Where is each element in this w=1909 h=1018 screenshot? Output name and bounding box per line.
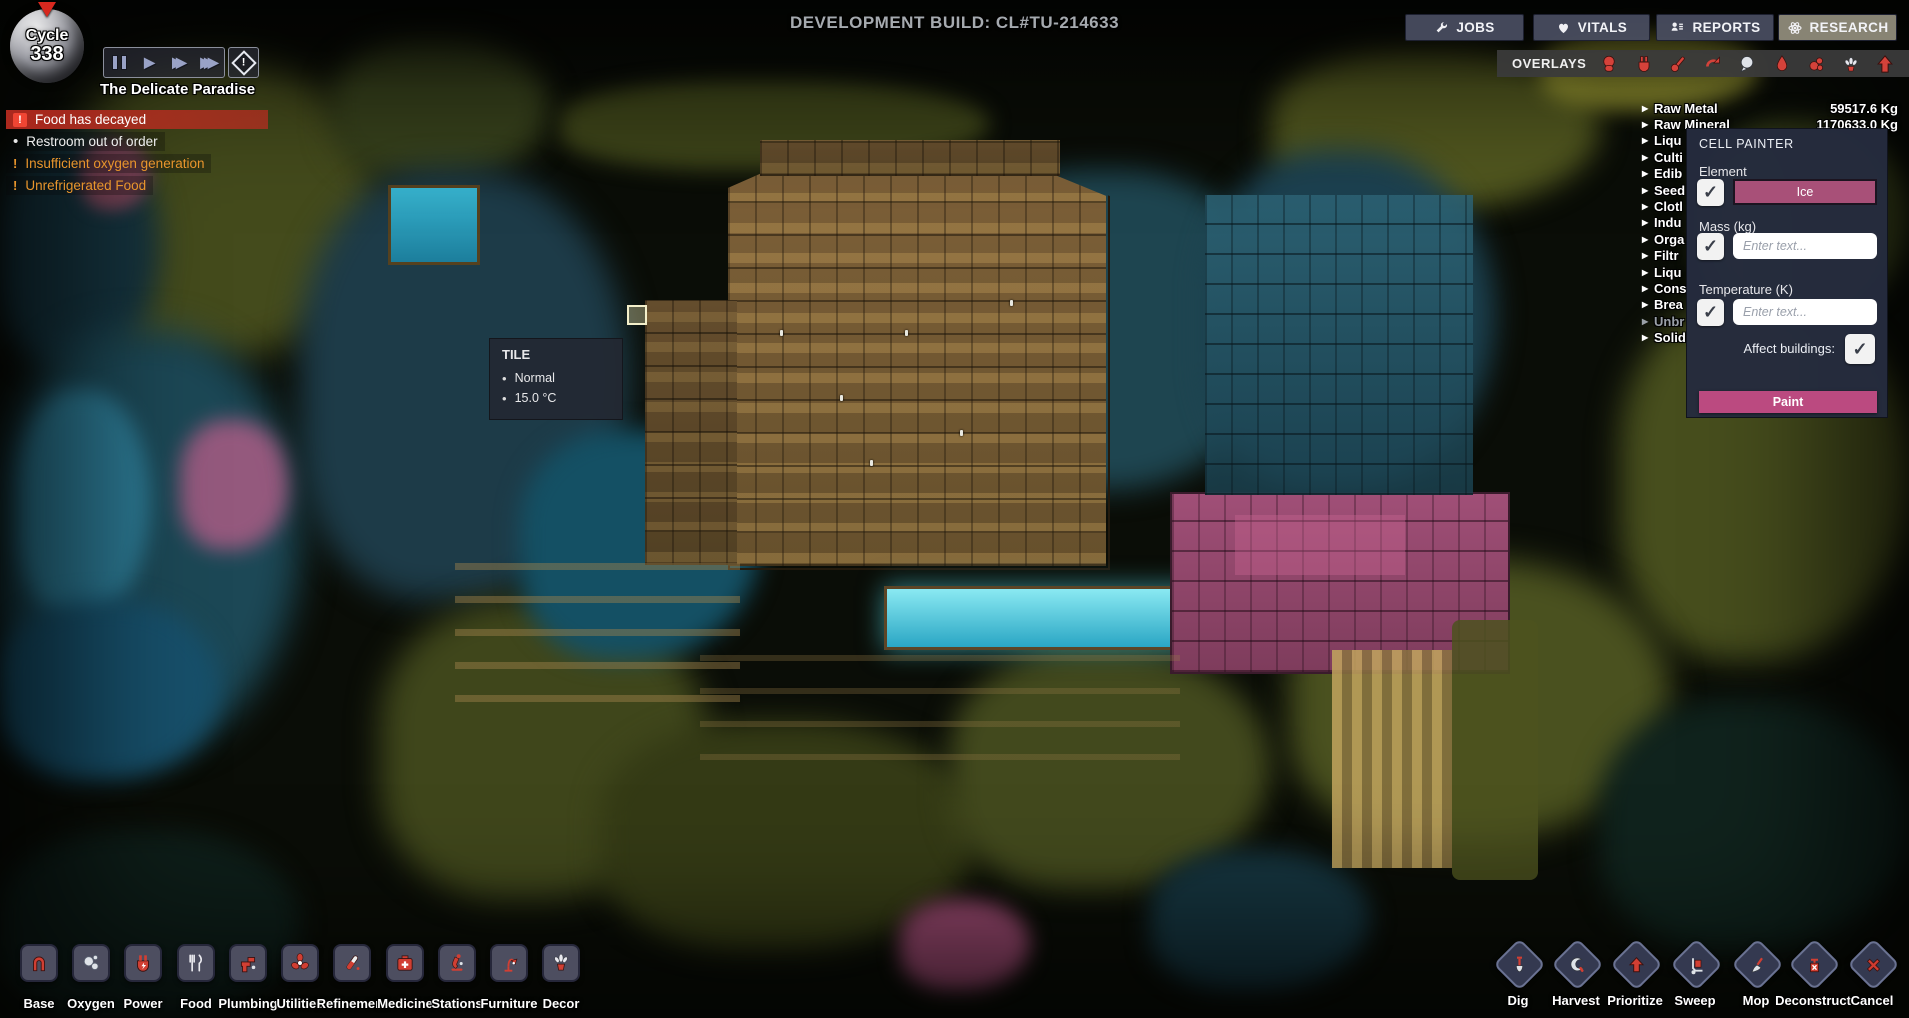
bullet-icon: •: [13, 134, 18, 149]
east-structure: [1205, 195, 1473, 495]
resource-label: Liqu: [1654, 265, 1681, 280]
conveyor-overlay-icon[interactable]: [1702, 53, 1724, 75]
notifications-button[interactable]: !: [228, 47, 259, 78]
dev-build-label: DEVELOPMENT BUILD: CL#TU-214633: [790, 13, 1119, 33]
expand-arrow-icon: ▶: [1642, 300, 1654, 309]
build-category-plumbing[interactable]: [229, 944, 267, 982]
industrial-zone-highlight: [1235, 515, 1405, 575]
cycle-badge[interactable]: Cycle 338: [10, 9, 84, 83]
resource-label: Orga: [1654, 232, 1684, 247]
exclamation-icon: !: [13, 113, 27, 127]
tooltip-item: Normal: [515, 371, 555, 385]
sweep-icon: [1687, 955, 1707, 975]
mass-label: Mass (kg): [1699, 219, 1756, 234]
resource-label: Raw Metal: [1654, 101, 1718, 116]
olive-column: [1452, 620, 1538, 880]
bullet-icon: •: [502, 371, 507, 386]
research-button[interactable]: RESEARCH: [1778, 14, 1897, 41]
alert-row[interactable]: ! Unrefrigerated Food: [6, 176, 153, 195]
check-icon: ✓: [1703, 182, 1718, 203]
expand-arrow-icon: ▶: [1642, 120, 1654, 129]
mass-checkbox[interactable]: ✓: [1697, 233, 1724, 260]
colony-base-left-wing: [645, 300, 737, 565]
build-category-furniture[interactable]: [490, 944, 528, 982]
resource-label: Cons: [1654, 281, 1687, 296]
floors-left: [455, 552, 740, 702]
deconstruct-icon: [1805, 955, 1825, 975]
affect-buildings-label: Affect buildings:: [1743, 341, 1835, 356]
resource-label: Unbr: [1654, 314, 1684, 329]
food-icon: [185, 952, 207, 974]
pause-button[interactable]: [104, 48, 134, 77]
cycle-number: 338: [10, 44, 84, 65]
resource-label: Brea: [1654, 297, 1683, 312]
colony-base-grid: [728, 168, 1106, 566]
alerts-list: ! Food has decayed • Restroom out of ord…: [6, 110, 268, 195]
base-icon: [28, 952, 50, 974]
resource-label: Solid: [1654, 330, 1686, 345]
duplicant: [960, 430, 963, 436]
floors-bottom: [700, 640, 1180, 760]
power-icon: [132, 952, 154, 974]
expand-arrow-icon: ▶: [1642, 317, 1654, 326]
build-category-utilities[interactable]: [281, 944, 319, 982]
medicine-icon: [394, 952, 416, 974]
map-region: [330, 40, 550, 180]
expand-arrow-icon: ▶: [1642, 235, 1654, 244]
duplicant: [870, 460, 873, 466]
decor-icon: [550, 952, 572, 974]
playback-controls: ▶ ▶▶ ▶▶▶: [103, 47, 225, 78]
cycle-label: Cycle: [10, 27, 84, 44]
jobs-button[interactable]: JOBS: [1405, 14, 1524, 41]
reports-label: REPORTS: [1692, 20, 1760, 35]
research-label: RESEARCH: [1810, 20, 1889, 35]
fast-forward-button[interactable]: ▶▶: [164, 48, 194, 77]
bullet-icon: •: [502, 391, 507, 406]
element-value: Ice: [1797, 185, 1814, 199]
alert-text: Food has decayed: [35, 112, 146, 127]
farming-overlay-icon[interactable]: [1805, 53, 1827, 75]
tooltip-title: TILE: [502, 347, 610, 362]
expand-arrow-icon: ▶: [1642, 333, 1654, 342]
utilities-icon: [289, 952, 311, 974]
vitals-label: VITALS: [1578, 20, 1627, 35]
resource-label: Liqu: [1654, 133, 1681, 148]
oxygen-overlay-icon[interactable]: [1598, 53, 1620, 75]
location-pin-icon: [38, 2, 56, 17]
colony-name: The Delicate Paradise: [100, 81, 255, 98]
exclamation-icon: !: [13, 156, 17, 171]
build-category-power[interactable]: [124, 944, 162, 982]
build-category-oxygen[interactable]: [72, 944, 110, 982]
element-label: Element: [1699, 164, 1747, 179]
overlays-bar: OVERLAYS: [1497, 50, 1909, 77]
jobs-label: JOBS: [1456, 20, 1494, 35]
play-icon: ▶: [144, 54, 148, 71]
tooltip-item: 15.0 °C: [515, 391, 557, 405]
temperature-checkbox[interactable]: ✓: [1697, 299, 1724, 326]
harvest-icon: [1568, 955, 1588, 975]
decor-overlay-icon[interactable]: [1840, 53, 1862, 75]
resource-value: 59517.6 Kg: [1830, 101, 1898, 116]
priority-overlay-icon[interactable]: [1874, 53, 1896, 75]
alert-row[interactable]: • Restroom out of order: [6, 132, 165, 151]
germ-overlay-icon[interactable]: [1736, 53, 1758, 75]
paint-button[interactable]: Paint: [1699, 391, 1877, 413]
build-category-base[interactable]: [20, 944, 58, 982]
alert-text: Restroom out of order: [26, 134, 157, 149]
hovered-cell-marker: [627, 305, 647, 325]
heart-icon: [1556, 20, 1571, 35]
resource-row[interactable]: ▶ Raw Metal 59517.6 Kg: [1642, 100, 1898, 116]
map-region: [0, 600, 220, 780]
play-button[interactable]: ▶: [134, 48, 164, 77]
alert-text: Insufficient oxygen generation: [25, 156, 204, 171]
expand-arrow-icon: ▶: [1642, 153, 1654, 162]
expand-arrow-icon: ▶: [1642, 268, 1654, 277]
map-region: [1600, 700, 1909, 950]
plumbing-icon: [237, 952, 259, 974]
duplicant: [840, 395, 843, 401]
alert-text: Unrefrigerated Food: [25, 178, 146, 193]
expand-arrow-icon: ▶: [1642, 251, 1654, 260]
check-icon: ✓: [1703, 236, 1718, 257]
liquid-overlay-icon[interactable]: [1771, 53, 1793, 75]
tool-label-cancel: Cancel: [1824, 993, 1909, 1008]
resource-label: Filtr: [1654, 248, 1679, 263]
prioritize-icon: [1627, 955, 1647, 975]
water-window: [388, 185, 480, 265]
element-checkbox[interactable]: ✓: [1697, 179, 1724, 206]
build-category-medicine[interactable]: [386, 944, 424, 982]
fastest-forward-button[interactable]: ▶▶▶: [194, 48, 224, 77]
resource-label: Clotl: [1654, 199, 1683, 214]
pause-icon: [112, 55, 127, 70]
mass-input[interactable]: [1733, 233, 1877, 259]
resource-label: Edib: [1654, 166, 1682, 181]
vitals-button[interactable]: VITALS: [1533, 14, 1650, 41]
panel-title: CELL PAINTER: [1699, 137, 1794, 151]
fastest-forward-icon: ▶▶▶: [200, 54, 211, 71]
expand-arrow-icon: ▶: [1642, 202, 1654, 211]
wrench-icon: [1434, 20, 1449, 35]
duplicant: [905, 330, 908, 336]
duplicant: [780, 330, 783, 336]
temperature-input[interactable]: [1733, 299, 1877, 325]
resource-label: Seed: [1654, 183, 1685, 198]
alert-row[interactable]: ! Food has decayed: [6, 110, 268, 129]
sand-column: [1332, 650, 1452, 868]
resource-label: Culti: [1654, 150, 1683, 165]
oni-game-screen: { "glyphs": {"check":"✓","arrow":"▶","bu…: [0, 0, 1909, 1018]
expand-arrow-icon: ▶: [1642, 186, 1654, 195]
alert-row[interactable]: ! Insufficient oxygen generation: [6, 154, 211, 173]
exclamation-icon: !: [13, 178, 17, 193]
expand-arrow-icon: ▶: [1642, 104, 1654, 113]
fast-forward-icon: ▶▶: [172, 54, 180, 71]
element-select-button[interactable]: Ice: [1733, 179, 1877, 205]
furniture-icon: [498, 952, 520, 974]
check-icon: ✓: [1703, 302, 1718, 323]
build-category-refinement[interactable]: [333, 944, 371, 982]
expand-arrow-icon: ▶: [1642, 284, 1654, 293]
build-label-decor: Decor: [523, 996, 599, 1011]
cancel-icon: [1864, 955, 1884, 975]
expand-arrow-icon: ▶: [1642, 218, 1654, 227]
map-region: [0, 830, 300, 1018]
tile-tooltip: TILE • Normal • 15.0 °C: [489, 338, 623, 420]
overlays-label: OVERLAYS: [1512, 56, 1586, 71]
build-category-food[interactable]: [177, 944, 215, 982]
build-category-stations[interactable]: [438, 944, 476, 982]
cell-painter-panel: CELL PAINTER Element ✓ Ice Mass (kg) ✓ T…: [1686, 128, 1888, 418]
map-region: [900, 900, 1030, 990]
temperature-overlay-icon[interactable]: [1667, 53, 1689, 75]
expand-arrow-icon: ▶: [1642, 169, 1654, 178]
colony-base-top: [760, 140, 1060, 176]
alert-diamond-icon: !: [231, 50, 256, 75]
build-category-decor[interactable]: [542, 944, 580, 982]
stations-icon: [446, 952, 468, 974]
duplicant: [1010, 300, 1013, 306]
atom-icon: [1787, 20, 1803, 36]
affect-buildings-checkbox[interactable]: ✓: [1845, 334, 1875, 364]
report-person-icon: [1669, 20, 1685, 35]
oxygen-icon: [80, 952, 102, 974]
map-region: [1150, 850, 1370, 990]
expand-arrow-icon: ▶: [1642, 136, 1654, 145]
game-map[interactable]: [0, 0, 1909, 1018]
paint-label: Paint: [1773, 395, 1804, 409]
check-icon: ✓: [1852, 339, 1867, 360]
mop-icon: [1748, 955, 1768, 975]
reports-button[interactable]: REPORTS: [1656, 14, 1774, 41]
refinement-icon: [341, 952, 363, 974]
power-overlay-icon[interactable]: [1633, 53, 1655, 75]
resource-label: Indu: [1654, 215, 1681, 230]
temperature-label: Temperature (K): [1699, 282, 1793, 297]
dig-icon: [1510, 955, 1530, 975]
